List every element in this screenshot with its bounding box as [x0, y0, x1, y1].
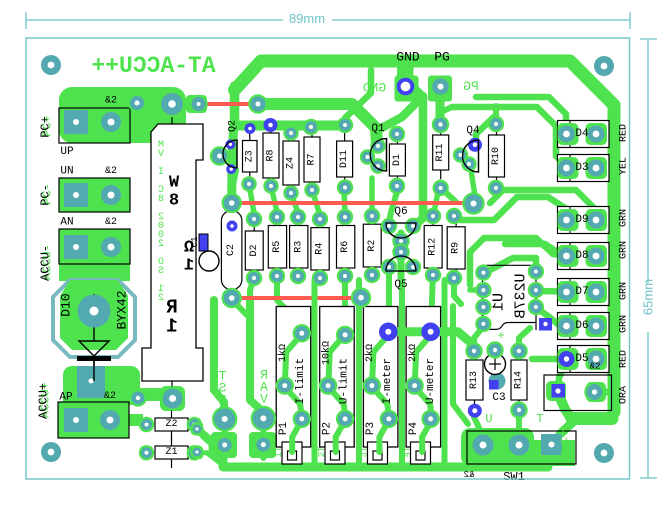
svg-text:U-limit: U-limit [338, 358, 350, 404]
svg-text:GRN: GRN [619, 282, 630, 300]
svg-text:PC-: PC- [39, 184, 53, 206]
svg-text:AT-ACCU++: AT-ACCU++ [91, 53, 215, 79]
svg-text:GRN: GRN [619, 315, 630, 333]
svg-text:D10: D10 [59, 293, 74, 316]
svg-text:P2: P2 [322, 422, 334, 435]
svg-text:U237B: U237B [513, 273, 530, 318]
svg-text:Q5: Q5 [394, 279, 407, 291]
svg-text:89mm: 89mm [289, 11, 325, 26]
svg-text:D4: D4 [575, 128, 589, 140]
svg-text:P1: P1 [278, 422, 290, 436]
svg-text:PG: PG [434, 50, 450, 65]
svg-text:Z4: Z4 [286, 157, 297, 169]
svg-text:&2: &2 [590, 362, 601, 372]
svg-text:UP: UP [60, 146, 74, 158]
svg-text:BYX42: BYX42 [115, 290, 130, 329]
svg-text:U: U [485, 412, 492, 426]
svg-text:2kΩ: 2kΩ [364, 344, 376, 362]
svg-text:3T: 3T [360, 446, 370, 457]
svg-text:PC+: PC+ [39, 116, 53, 138]
svg-text:1kΩ: 1kΩ [277, 344, 289, 362]
svg-text:R10: R10 [491, 147, 502, 165]
svg-text:D9: D9 [575, 214, 588, 226]
svg-text:Q6: Q6 [394, 206, 407, 218]
svg-text:Ω: Ω [184, 239, 194, 258]
svg-text:I-meter: I-meter [382, 358, 394, 404]
svg-text:D11: D11 [339, 150, 350, 168]
svg-text:Q4: Q4 [466, 125, 480, 137]
svg-text:D2: D2 [249, 244, 260, 256]
svg-text:V: V [260, 391, 268, 406]
svg-text:P3: P3 [365, 422, 377, 435]
svg-text:GRN: GRN [619, 241, 630, 259]
svg-text:T: T [536, 412, 543, 426]
svg-text:Q1: Q1 [371, 123, 385, 135]
svg-text:D5: D5 [575, 353, 588, 365]
svg-text:8: 8 [169, 192, 179, 211]
svg-text:+: + [497, 329, 504, 343]
svg-text:GND: GND [363, 81, 387, 96]
svg-text:R11: R11 [435, 143, 446, 161]
svg-text:D1: D1 [392, 154, 403, 166]
svg-text:R14: R14 [514, 371, 525, 389]
svg-text:R2: R2 [367, 240, 378, 252]
svg-text:2kΩ: 2kΩ [407, 344, 419, 362]
svg-text:Z2: Z2 [165, 419, 177, 430]
svg-text:2: 2 [158, 293, 164, 304]
svg-text:C3: C3 [492, 392, 505, 404]
svg-text:4T: 4T [403, 446, 413, 457]
svg-text:&2: &2 [104, 391, 116, 402]
svg-text:D8: D8 [575, 250, 588, 262]
svg-text:Q2: Q2 [228, 120, 239, 132]
svg-text:1T: 1T [274, 446, 284, 457]
svg-text:PG: PG [463, 79, 479, 94]
svg-text:10kΩ: 10kΩ [320, 341, 332, 365]
svg-text:R6: R6 [340, 241, 351, 253]
svg-text:S: S [158, 266, 164, 277]
svg-text:R9: R9 [451, 242, 462, 254]
svg-text:R: R [218, 392, 226, 407]
svg-text:RED: RED [619, 124, 630, 142]
svg-text:ACCU+: ACCU+ [37, 383, 51, 419]
svg-text:GRN: GRN [619, 209, 630, 227]
svg-text:P4: P4 [408, 422, 420, 436]
svg-text:AP: AP [59, 392, 73, 404]
svg-text:&2: &2 [105, 217, 117, 228]
svg-text:YEL: YEL [619, 157, 630, 175]
svg-text:GND: GND [396, 50, 420, 65]
svg-text:R7: R7 [307, 153, 318, 165]
svg-text:R5: R5 [272, 241, 283, 253]
svg-text:8: 8 [158, 194, 164, 205]
svg-text:V: V [158, 149, 164, 160]
svg-text:2: 2 [158, 239, 164, 250]
svg-text:RED: RED [619, 350, 630, 368]
svg-text:R4: R4 [315, 243, 326, 255]
svg-text:C2: C2 [226, 244, 237, 256]
svg-text:U1: U1 [491, 293, 508, 311]
svg-text:U-meter: U-meter [425, 358, 437, 404]
svg-text:S: S [560, 447, 567, 459]
svg-text:&2: &2 [105, 96, 117, 107]
svg-text:1: 1 [166, 316, 177, 338]
svg-text:R12: R12 [428, 238, 439, 256]
svg-text:I-limit: I-limit [295, 358, 307, 404]
svg-text:ORA: ORA [619, 386, 630, 404]
svg-text:R8: R8 [266, 149, 277, 161]
svg-text:2T: 2T [317, 446, 327, 457]
svg-text:R13: R13 [469, 371, 480, 389]
svg-text:UN: UN [60, 166, 73, 178]
svg-text:I: I [158, 167, 164, 178]
svg-text:&2: &2 [105, 166, 117, 177]
svg-text:D7: D7 [575, 286, 588, 298]
svg-text:D3: D3 [575, 162, 588, 174]
svg-text:1: 1 [184, 257, 194, 276]
svg-text:Z1: Z1 [165, 447, 177, 458]
svg-text:R3: R3 [293, 241, 304, 253]
svg-text:W: W [168, 174, 179, 193]
svg-text:ACCU-: ACCU- [39, 245, 53, 281]
svg-text:SW1: SW1 [503, 470, 525, 484]
svg-text:AN: AN [60, 217, 73, 229]
svg-text:D6: D6 [575, 320, 588, 332]
svg-text:65mm: 65mm [641, 279, 656, 315]
svg-text:Z3: Z3 [244, 150, 255, 162]
